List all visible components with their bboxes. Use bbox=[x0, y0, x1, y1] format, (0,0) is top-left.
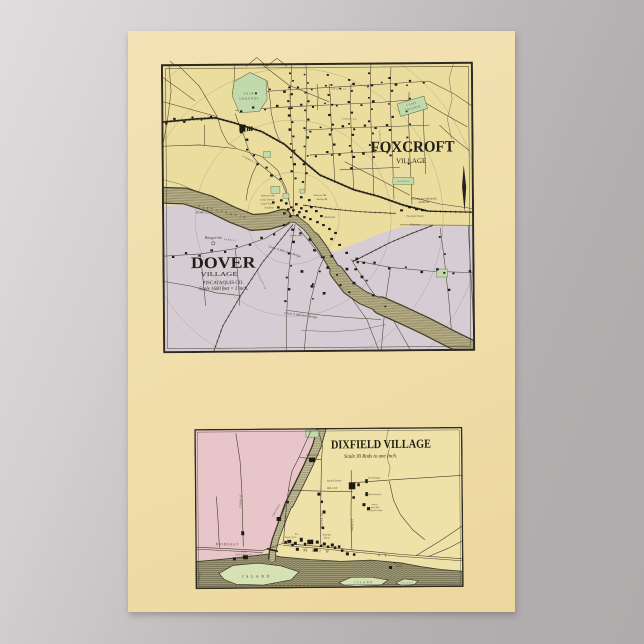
svg-text:Bangornia: Bangornia bbox=[205, 235, 222, 240]
svg-text:S T: S T bbox=[378, 553, 388, 558]
svg-text:Blethen Ho.: Blethen Ho. bbox=[324, 216, 336, 219]
svg-text:J.S.Harlow Shop: J.S.Harlow Shop bbox=[366, 510, 382, 512]
svg-text:School House: School House bbox=[306, 453, 319, 456]
svg-text:VILLAGE: VILLAGE bbox=[201, 272, 239, 278]
svg-text:STATION: STATION bbox=[419, 201, 430, 204]
svg-text:ISLAND: ISLAND bbox=[354, 581, 373, 584]
svg-text:Spool Factory: Spool Factory bbox=[326, 479, 342, 482]
svg-text:Browns Mills: Browns Mills bbox=[290, 234, 303, 237]
svg-text:GATE ST: GATE ST bbox=[283, 514, 287, 526]
svg-text:GROUNDS: GROUNDS bbox=[239, 96, 259, 100]
svg-text:UNION SQ: UNION SQ bbox=[342, 119, 357, 121]
svg-text:CANAL ST: CANAL ST bbox=[239, 494, 243, 508]
svg-text:Scale 30 Rods to one Inch.: Scale 30 Rods to one Inch. bbox=[344, 453, 397, 459]
svg-text:Harcourt: Harcourt bbox=[409, 223, 420, 226]
svg-text:Wm.: Wm. bbox=[294, 533, 298, 535]
svg-text:B R I D G E S T: B R I D G E S T bbox=[215, 542, 238, 547]
svg-text:Tin Factory: Tin Factory bbox=[368, 476, 381, 479]
svg-text:Academy: Academy bbox=[264, 206, 275, 209]
svg-text:House: House bbox=[394, 564, 401, 567]
svg-text:Tinker: Tinker bbox=[241, 551, 247, 553]
svg-text:VILLAGE: VILLAGE bbox=[396, 157, 426, 165]
svg-text:Passenger Station: Passenger Station bbox=[405, 215, 424, 218]
svg-text:ISLAND: ISLAND bbox=[242, 573, 272, 578]
svg-text:House: House bbox=[322, 536, 329, 539]
svg-text:THIRD ST: THIRD ST bbox=[350, 518, 353, 531]
svg-text:SCHOOL ST: SCHOOL ST bbox=[320, 512, 324, 527]
svg-text:FAIR: FAIR bbox=[244, 91, 255, 95]
svg-text:Sole Factory: Sole Factory bbox=[367, 493, 381, 496]
svg-text:Cong'l Church: Cong'l Church bbox=[260, 198, 275, 201]
svg-text:Kilbourne Blk: Kilbourne Blk bbox=[260, 194, 275, 197]
svg-text:FOXCROFT: FOXCROFT bbox=[370, 138, 455, 156]
svg-text:Cong'l Vestry: Cong'l Vestry bbox=[261, 202, 275, 205]
svg-text:Spool Mill: Spool Mill bbox=[369, 507, 379, 509]
svg-text:Town Line: Town Line bbox=[196, 209, 213, 214]
svg-text:M A I N: M A I N bbox=[303, 547, 330, 554]
svg-text:Scale 1600 feet = 1 inch.: Scale 1600 feet = 1 inch. bbox=[199, 285, 248, 292]
svg-text:RIVERSIDE PK: RIVERSIDE PK bbox=[397, 181, 410, 183]
svg-text:HILL ST: HILL ST bbox=[327, 486, 338, 489]
svg-text:Savings Bk: Savings Bk bbox=[317, 198, 329, 201]
svg-text:MAIN ST: MAIN ST bbox=[288, 94, 292, 107]
svg-text:DIXFIELD VILLAGE: DIXFIELD VILLAGE bbox=[330, 436, 430, 451]
svg-text:GROVE ST: GROVE ST bbox=[331, 89, 346, 91]
svg-text:DOVER: DOVER bbox=[191, 254, 256, 273]
svg-text:Observer Blk: Observer Blk bbox=[314, 194, 328, 197]
